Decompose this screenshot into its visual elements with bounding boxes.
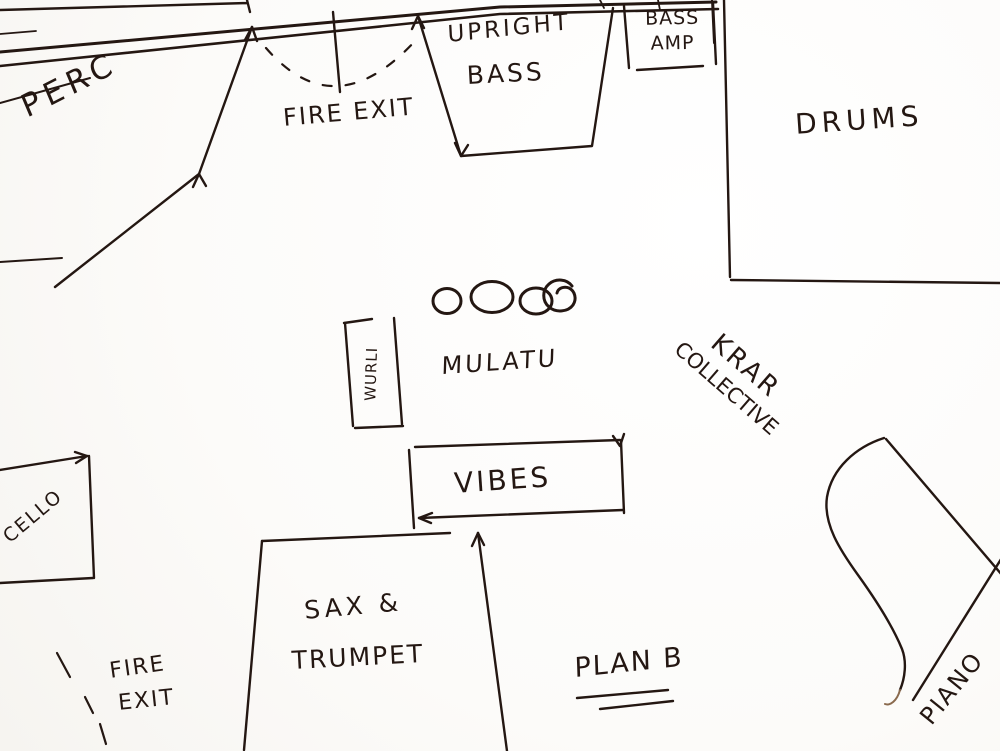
wurli-label: WURLI <box>342 320 400 428</box>
vibes-label: VIBES <box>453 460 552 500</box>
bass-amp-label-line1: BASS <box>630 7 714 30</box>
bass-amp-label: BASS AMP <box>630 7 715 55</box>
upright-bass-label-line2: BASS <box>466 57 545 90</box>
drums-area-boundary <box>712 0 1000 283</box>
perc-area-boundary <box>0 27 257 287</box>
fire-exit-bottom-dashes <box>57 653 106 744</box>
bass-amp-label-line2: AMP <box>630 32 714 55</box>
stage-plan-sketch: PERC FIRE EXIT UPRIGHT BASS BASS AMP DRU… <box>0 0 1000 751</box>
percussion-circles <box>433 280 575 314</box>
plan-b-underline <box>577 690 673 709</box>
wurli-label-text: WURLI <box>361 347 381 402</box>
